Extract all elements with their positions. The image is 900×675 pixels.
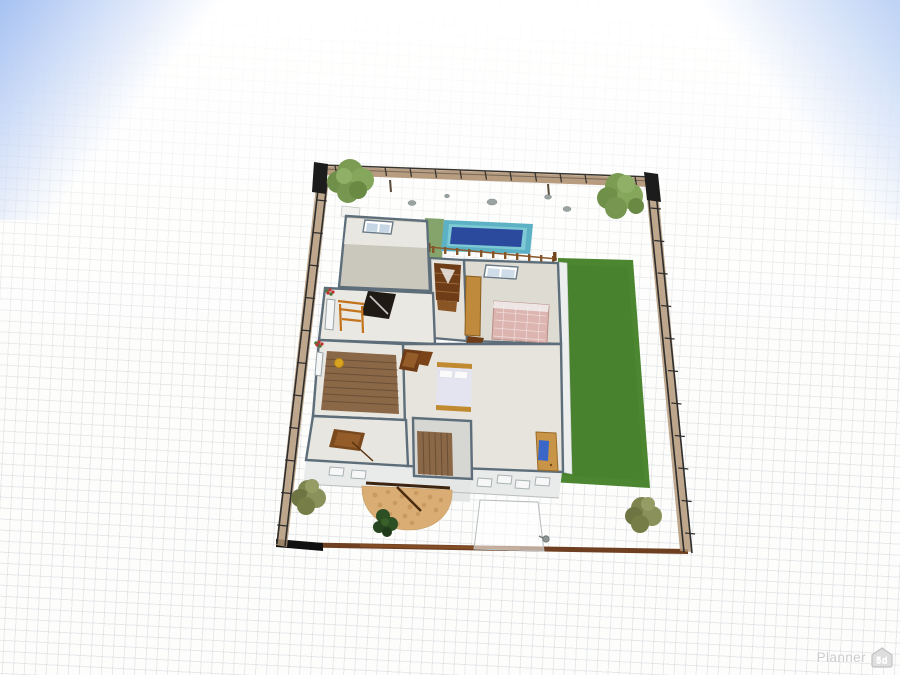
tree-bottom-right[interactable]: [625, 497, 662, 533]
balustrade-end-post-right: [553, 252, 557, 261]
watermark-badge-text: 5d: [876, 655, 888, 666]
garden-lamp[interactable]: [543, 536, 549, 542]
room-wood-window[interactable]: [315, 352, 323, 376]
desk-chair-blue[interactable]: [538, 440, 549, 461]
walkway-path[interactable]: [474, 500, 544, 551]
fence-right-rail-inner: [648, 191, 684, 552]
bed-double-white[interactable]: [436, 362, 472, 412]
planner5d-watermark: Planner 5d: [817, 647, 894, 668]
fence-corner-post-tl: [312, 162, 328, 194]
fence-right-rail-outer: [656, 192, 692, 553]
fence-right[interactable]: [646, 188, 695, 553]
living-room-window[interactable]: [325, 299, 335, 330]
swimming-pool[interactable]: [423, 218, 533, 259]
living-room[interactable]: [319, 288, 435, 344]
planner5d-3d-viewport[interactable]: Planner 5d: [0, 0, 900, 675]
fence-hanging-post-1: [390, 180, 391, 192]
rock[interactable]: [563, 207, 571, 212]
entry-room[interactable]: [413, 418, 472, 479]
stool-yellow[interactable]: [335, 359, 344, 368]
bed-double-pink[interactable]: [492, 301, 549, 343]
fence-hanging-post-2: [548, 184, 549, 196]
rock[interactable]: [408, 201, 416, 206]
fence-corner-post-tr: [644, 172, 661, 202]
pool-water[interactable]: [450, 227, 523, 247]
rock[interactable]: [487, 199, 497, 205]
desk-with-chair[interactable]: [536, 432, 558, 471]
skylight-window[interactable]: [363, 220, 393, 234]
room-bottom-left[interactable]: [306, 416, 408, 466]
floorplan-scene[interactable]: [0, 0, 900, 675]
garden-rocks[interactable]: [408, 194, 571, 211]
patio[interactable]: [362, 483, 452, 537]
wardrobe[interactable]: [465, 276, 481, 336]
rock[interactable]: [545, 195, 552, 199]
watermark-brand-text: Planner: [817, 650, 866, 665]
planner5d-logo-badge-icon: 5d: [870, 647, 894, 668]
rock[interactable]: [445, 194, 450, 198]
room-top-left[interactable]: [339, 216, 430, 291]
room-wood-floor[interactable]: [313, 340, 406, 420]
bedroom-tr-window[interactable]: [484, 265, 518, 279]
bedroom-top-right[interactable]: [464, 260, 561, 355]
walkway[interactable]: [474, 500, 549, 551]
